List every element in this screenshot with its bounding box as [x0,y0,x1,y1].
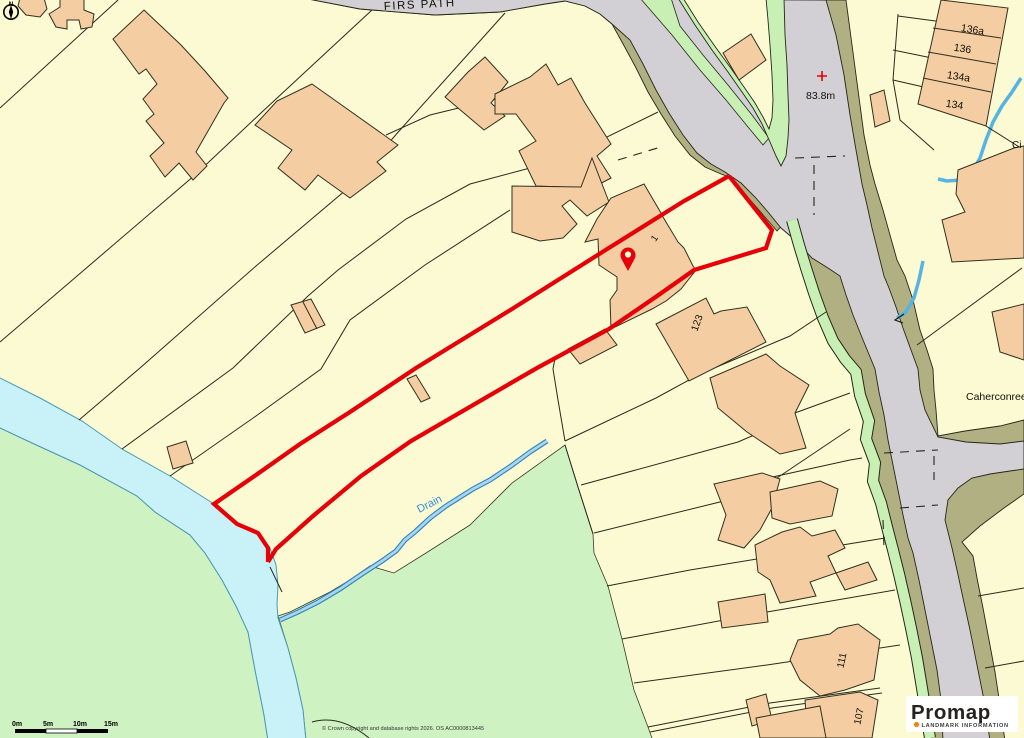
svg-text:15m: 15m [104,721,118,728]
svg-text:Caherconree: Caherconree [966,391,1024,403]
svg-text:Ci: Ci [1012,140,1021,151]
svg-text:LANDMARK INFORMATION: LANDMARK INFORMATION [922,723,1009,729]
svg-text:5m: 5m [43,721,53,728]
svg-text:0m: 0m [12,721,22,728]
svg-text:83.8m: 83.8m [806,90,835,102]
svg-text:N: N [9,2,13,8]
svg-text:© Crown copyright and database: © Crown copyright and database rights 20… [322,725,484,732]
svg-text:10m: 10m [73,721,87,728]
svg-text:Promap: Promap [911,701,991,724]
